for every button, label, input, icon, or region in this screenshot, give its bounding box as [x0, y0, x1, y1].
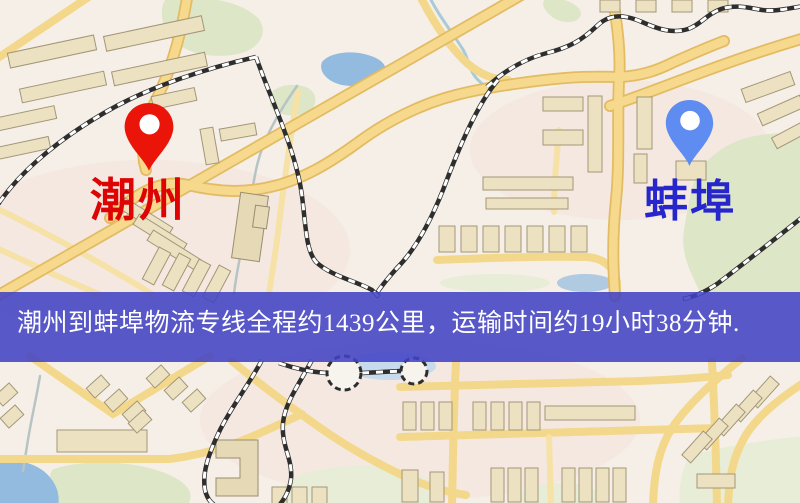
map-image: 潮州 蚌埠 潮州到蚌埠物流专线全程约1439公里，运输时间约19小时38分钟. — [0, 0, 800, 503]
map-background — [0, 0, 800, 503]
route-info-banner: 潮州到蚌埠物流专线全程约1439公里，运输时间约19小时38分钟. — [0, 292, 800, 362]
destination-marker-icon[interactable] — [661, 99, 718, 167]
origin-city-label: 潮州 — [84, 178, 192, 224]
route-info-text: 潮州到蚌埠物流专线全程约1439公里，运输时间约19小时38分钟. — [17, 303, 740, 339]
origin-pin-shape — [125, 103, 174, 171]
origin-marker-icon[interactable] — [117, 102, 181, 172]
destination-city-label: 蚌埠 — [636, 180, 744, 224]
destination-pin-shape — [666, 100, 713, 166]
